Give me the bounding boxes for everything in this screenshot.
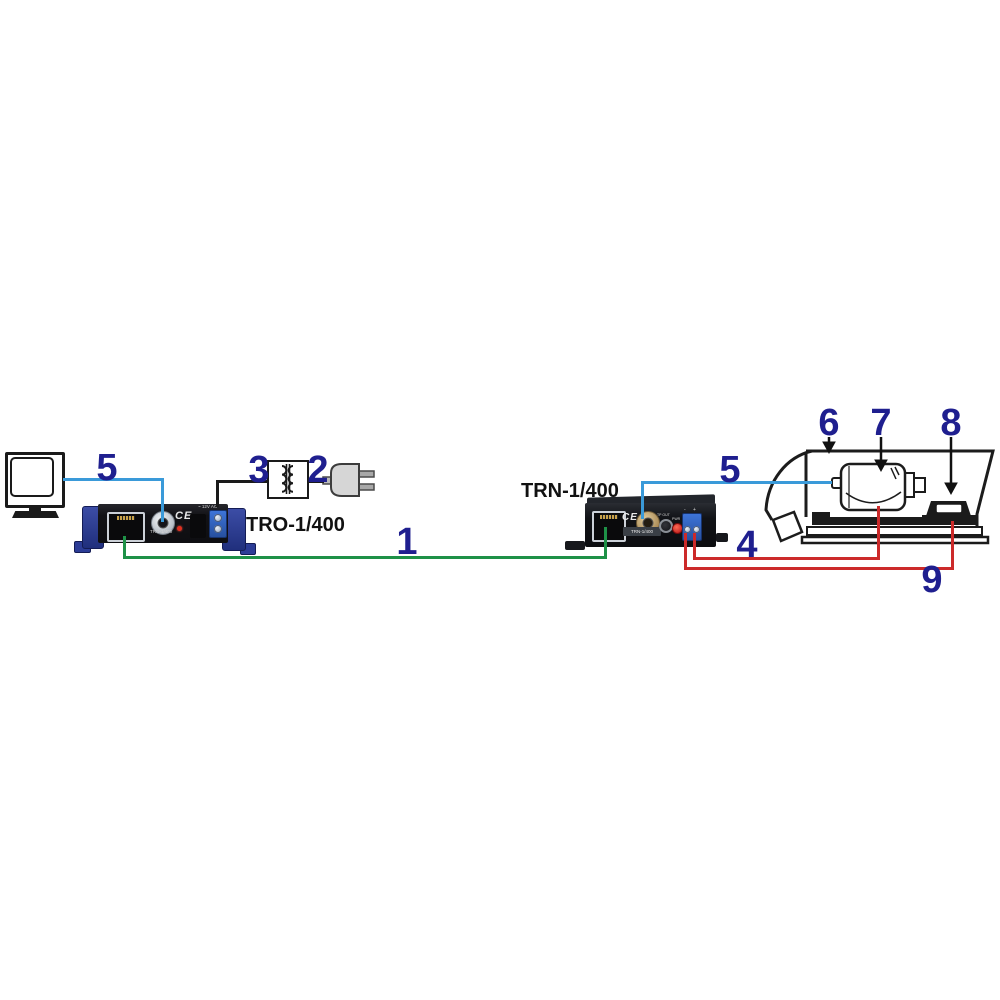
- wire-heater-power-v1: [684, 533, 687, 570]
- wire-camera-coax-v: [641, 483, 644, 519]
- terminal-screw: [693, 526, 700, 533]
- connection-diagram: CE TRO-1/400 ~ 12V AC CE TRN-1/400 TP OU…: [0, 0, 1000, 1000]
- tro-terminal-block: [209, 510, 227, 538]
- label-camera-coax: 5: [713, 451, 747, 489]
- trn-rj45-port: [592, 511, 626, 542]
- label-mains-plug: 2: [301, 451, 335, 489]
- label-camera: 7: [864, 404, 898, 442]
- tro-power-text: ~ 12V AC: [198, 504, 217, 509]
- wire-mains-v: [216, 480, 219, 507]
- trn-tpout-text: TP OUT: [657, 513, 670, 517]
- trn-tp-knob: [659, 519, 673, 533]
- heater-top: [936, 504, 962, 513]
- trn-foot-left: [565, 541, 585, 550]
- terminal-screw: [214, 514, 222, 522]
- wire-camera-power-h: [693, 557, 880, 560]
- trn-panel-label: TRN-1/400: [623, 527, 661, 536]
- wire-camera-power-v2: [877, 506, 880, 560]
- wire-twisted-pair-v2: [604, 527, 607, 559]
- monitor-screen: [10, 457, 54, 497]
- tro-panel-model: TRO-1/400: [150, 529, 172, 534]
- heater-base: [922, 515, 976, 522]
- camera-icon: [832, 464, 925, 510]
- heater-icon: [922, 501, 976, 522]
- wire-heater-power-h: [684, 567, 954, 570]
- tro-aux-ports: [190, 514, 206, 538]
- tro-title: TRO-1/400: [246, 514, 345, 537]
- camera-lens: [914, 478, 925, 492]
- plug-prong-bottom: [358, 484, 374, 490]
- wire-twisted-pair-h: [123, 556, 607, 559]
- rj45-pins: [117, 516, 135, 520]
- label-housing: 6: [812, 404, 846, 442]
- terminal-screw: [214, 525, 222, 533]
- wire-heater-power-v2: [951, 521, 954, 570]
- rj45-pins: [600, 515, 618, 519]
- rail-lower: [807, 527, 982, 535]
- housing-base: [802, 537, 988, 543]
- label-camera-power: 4: [730, 526, 764, 564]
- plug-body: [331, 464, 359, 496]
- monitor-icon: [5, 452, 65, 516]
- label-heater: 8: [934, 404, 968, 442]
- tro-power-led: [177, 526, 182, 531]
- tro-device: CE TRO-1/400 ~ 12V AC: [74, 496, 256, 556]
- trn-foot-right: [716, 533, 728, 542]
- tro-rj45-port: [107, 512, 145, 542]
- arrowhead-heater: [945, 483, 957, 494]
- label-twisted-pair: 1: [390, 523, 424, 561]
- wire-monitor-coax-v: [161, 478, 164, 522]
- label-power-supply: 3: [242, 451, 276, 489]
- trn-title: TRN-1/400: [521, 480, 619, 503]
- plug-prong-top: [358, 471, 374, 477]
- terminal-screw: [684, 526, 691, 533]
- camera-lens-mount: [905, 473, 914, 497]
- label-heater-power: 9: [915, 561, 949, 599]
- monitor-stand-base: [12, 511, 59, 518]
- housing-bracket: [773, 512, 802, 541]
- wire-camera-power-v1: [693, 533, 696, 560]
- trn-pwr-text: PWR: [672, 517, 680, 521]
- label-monitor-coax: 5: [90, 449, 124, 487]
